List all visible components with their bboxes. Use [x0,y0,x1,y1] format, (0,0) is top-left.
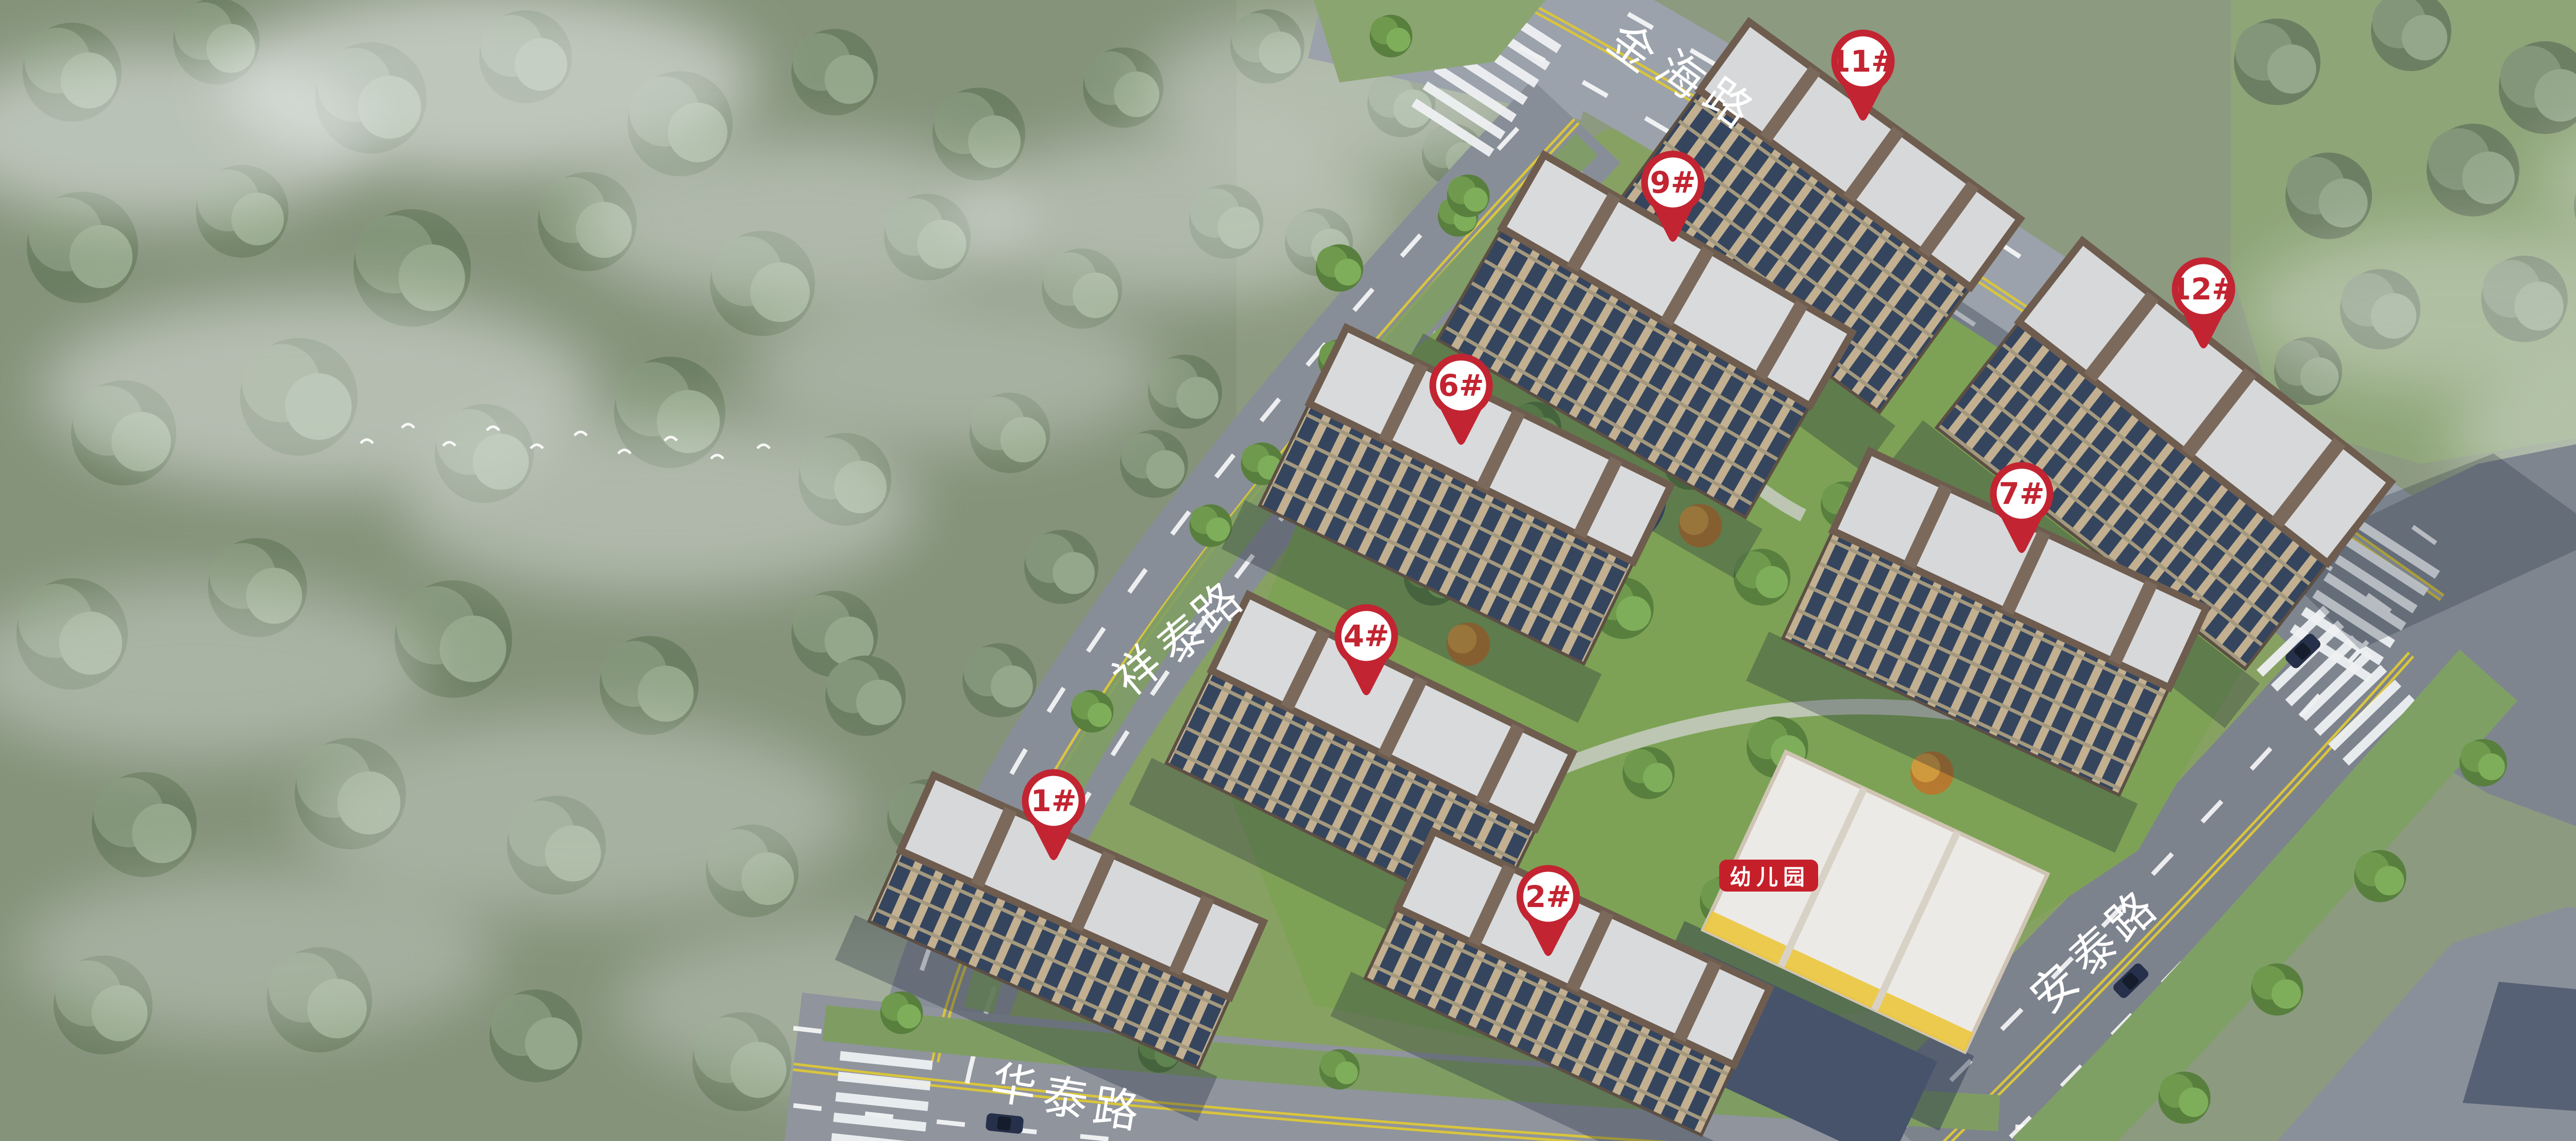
kindergarten-badge-label: 幼儿园 [1730,865,1810,890]
huatai-road-label-char: 华 [987,1055,1040,1115]
marker-number-label: 1# [1031,783,1077,818]
marker-number-label: 6# [1438,368,1484,403]
marker-number-label: 9# [1650,165,1696,200]
marker-number-label: 11# [1829,44,1896,79]
aerial-rendering: 幼儿园 金海路祥泰路安泰路华泰路 1#2#4#6#7#9#11#12# 鸟瞰图 [0,0,2576,1141]
marker-number-label: 12# [2170,272,2236,307]
marker-number-label: 7# [1999,476,2045,511]
huatai-road-label-char: 路 [1089,1079,1142,1139]
huatai-road-label-char: 泰 [1039,1068,1092,1128]
birdseye-scene: 幼儿园 金海路祥泰路安泰路华泰路 1#2#4#6#7#9#11#12# 鸟瞰图 [0,0,2576,1141]
marker-number-label: 4# [1344,618,1389,653]
marker-number-label: 2# [1526,879,1571,914]
kindergarten-badge: 幼儿园 [1719,860,1818,892]
